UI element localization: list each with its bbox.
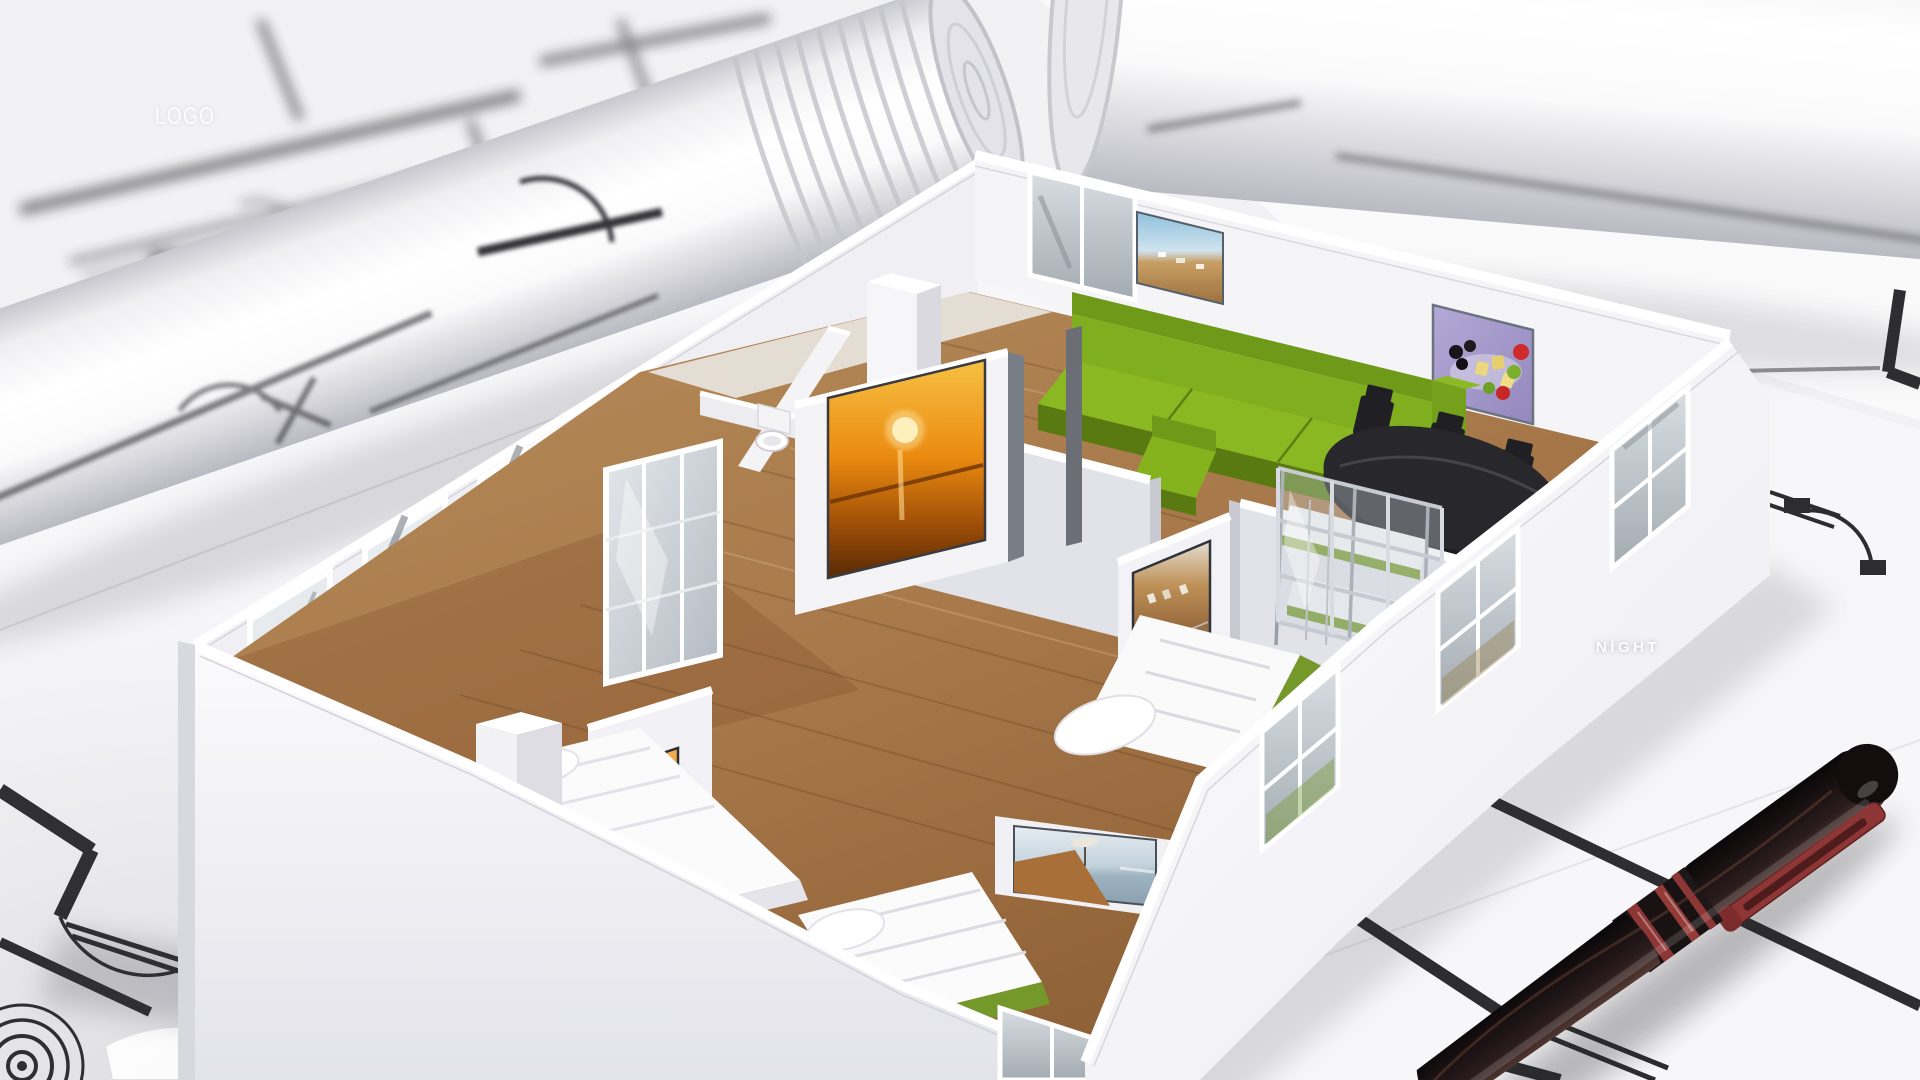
- logo-text: LOGO: [155, 103, 215, 131]
- wall-art-terrace: [1014, 826, 1156, 906]
- watermark-night-label: NİGHT: [1596, 639, 1660, 656]
- toilet: [756, 404, 790, 451]
- door-opening: [1066, 326, 1082, 546]
- master-wardrobe-mirror: [606, 442, 720, 683]
- wall-art-sunset: [828, 360, 985, 578]
- screenshot-canvas: LOGO NİGHT: [0, 0, 1920, 1080]
- scene-3d-apartment-render: [0, 0, 1920, 1080]
- balcony-glass-door: [1030, 172, 1135, 300]
